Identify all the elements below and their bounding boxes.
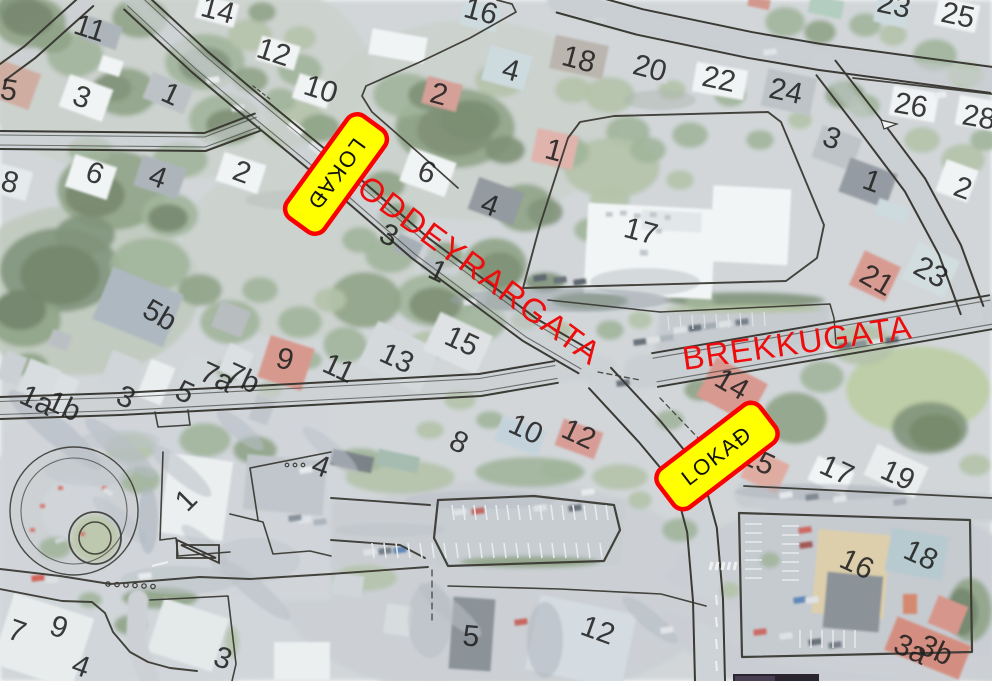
svg-text:24: 24 <box>766 72 806 111</box>
svg-text:22: 22 <box>699 60 739 99</box>
svg-text:5: 5 <box>461 619 481 653</box>
svg-text:26: 26 <box>892 86 931 124</box>
svg-text:28: 28 <box>960 98 992 136</box>
